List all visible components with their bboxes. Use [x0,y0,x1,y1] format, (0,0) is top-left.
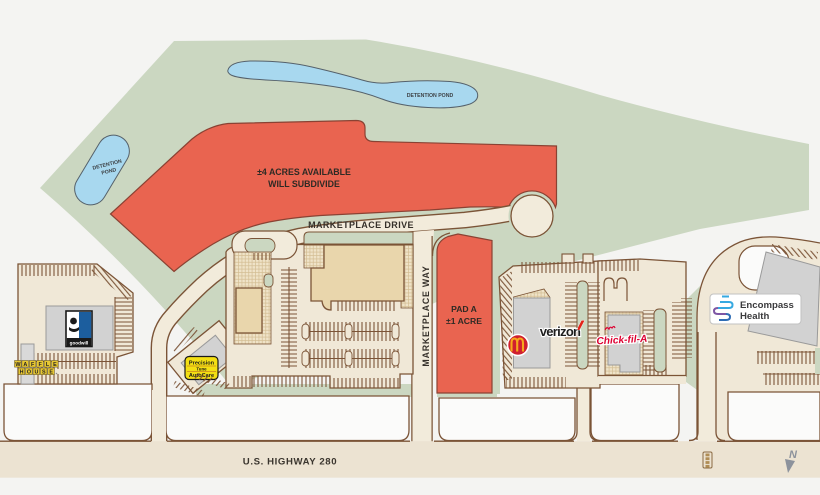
svg-text:Encompass: Encompass [740,300,794,311]
svg-text:MARKETPLACE DRIVE: MARKETPLACE DRIVE [308,220,414,230]
svg-text:±4 ACRES AVAILABLE: ±4 ACRES AVAILABLE [257,167,351,177]
svg-text:U: U [34,369,38,375]
svg-text:A: A [23,362,27,368]
svg-text:U.S. HIGHWAY 280: U.S. HIGHWAY 280 [243,457,337,468]
svg-text:E: E [49,369,53,375]
svg-text:N: N [789,449,798,461]
svg-text:H: H [20,369,24,375]
svg-text:MARKETPLACE WAY: MARKETPLACE WAY [421,265,431,366]
svg-text:Health: Health [740,311,769,322]
svg-text:E: E [53,362,57,368]
svg-text:verizon: verizon [540,324,581,339]
svg-text:Tune: Tune [196,367,207,372]
svg-text:WILL SUBDIVIDE: WILL SUBDIVIDE [268,179,340,189]
svg-text:S: S [42,369,46,375]
svg-text:goodwill: goodwill [70,341,89,346]
svg-text:PAD A: PAD A [451,304,477,314]
svg-text:O: O [27,369,31,375]
svg-text:DETENTION POND: DETENTION POND [407,93,454,99]
svg-text:±1 ACRE: ±1 ACRE [446,316,482,326]
